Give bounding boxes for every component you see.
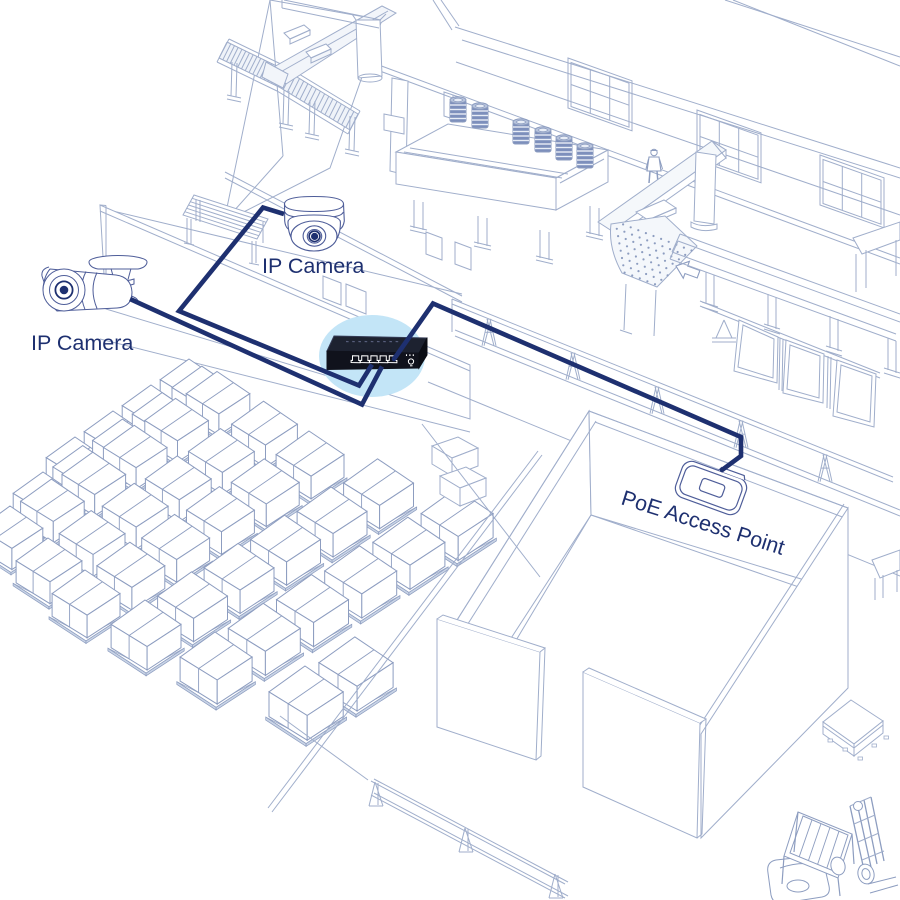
- svg-text:IP Camera: IP Camera: [262, 254, 364, 278]
- svg-text:IP Camera: IP Camera: [31, 331, 133, 355]
